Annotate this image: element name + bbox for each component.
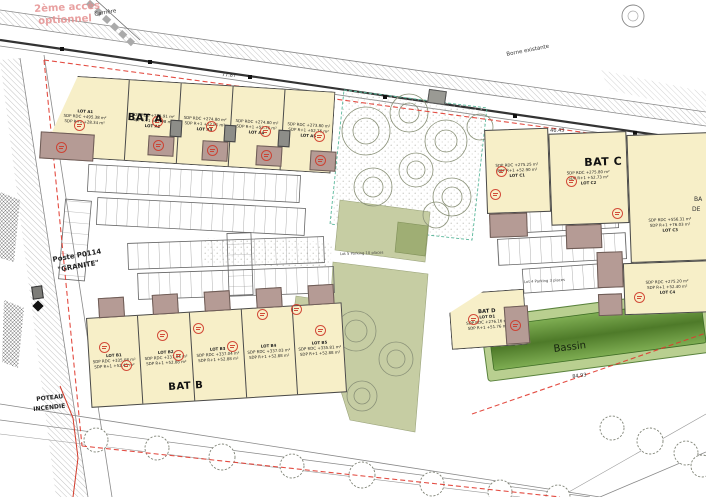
approval-stamp-icon [227,341,238,352]
approval-stamp-icon [121,360,132,371]
approval-stamp-icon [291,304,302,315]
approval-stamp-icon [315,155,326,166]
approval-stamp-icon [257,309,268,320]
approval-stamp-icon [490,189,501,200]
lot-b4: LOT B4 SDP RDC +337.03 m² SDP R+1 +52.88… [241,306,297,397]
site-plan-canvas: LOT A1 SDP RDC +495.38 m² SDP R+1 +28.34… [0,0,706,497]
approval-stamp-icon [74,120,85,131]
dim-bat-a: 77.87 [222,72,237,79]
stair-core [223,125,236,143]
bat-a-label: BAT A [127,112,163,125]
patio-c3 [596,251,623,288]
patio-c2 [566,224,603,249]
roundabout-center [628,11,638,21]
approval-stamp-icon [315,325,326,336]
approval-stamp-icon [207,145,218,156]
transformer-post [31,285,44,299]
approval-stamp-icon [206,121,217,132]
technical-shed [427,89,447,105]
approval-stamp-icon [510,320,521,331]
stair-core [277,130,290,148]
patio-c1 [489,213,528,238]
lot-c1: SDP RDC +275.25 m² SDP R+1 +52.90 m² LOT… [484,128,551,214]
approval-stamp-icon [314,131,325,142]
patio-a1 [39,131,95,161]
lot-b1: LOT B1 SDP RDC +335.08 m² SDP R+1 +52.45… [87,316,142,407]
patio-b5 [307,284,334,306]
approval-stamp-icon [173,350,184,361]
approval-stamp-icon [260,126,271,137]
roundabout [622,5,644,27]
approval-stamp-icon [261,150,272,161]
patio-b1 [98,297,125,319]
bat-c-label: BAT C [584,155,622,169]
approval-stamp-icon [634,292,645,303]
approval-stamp-icon [157,330,168,341]
approval-stamp-icon [468,314,479,325]
patio-b4 [256,287,283,309]
stair-core [169,120,182,138]
dim-bat-c: 46.43 [550,127,565,133]
lot-b5: LOT B5 SDP RDC +335.81 m² SDP R+1 +52.88… [292,303,348,394]
patio-b3 [204,290,231,312]
approval-stamp-icon [612,208,623,219]
patio-c4 [598,293,623,316]
patio-b2 [152,293,179,315]
approval-stamp-icon [99,342,110,353]
approval-stamp-icon [56,142,67,153]
building-bat-b: LOT B1 SDP RDC +335.08 m² SDP R+1 +52.45… [86,302,347,407]
approval-stamp-icon [193,323,204,334]
approval-stamp-icon [153,140,164,151]
edge-partial-label-1: BA [694,196,702,203]
bat-b-label: BAT B [168,380,204,393]
approval-stamp-icon [566,176,577,187]
lot-c4: SDP RDC +275.20 m² SDP R+1 +52.40 m² LOT… [623,260,706,315]
edge-partial-label-2: DE [692,206,700,213]
approval-stamp-icon [496,166,507,177]
